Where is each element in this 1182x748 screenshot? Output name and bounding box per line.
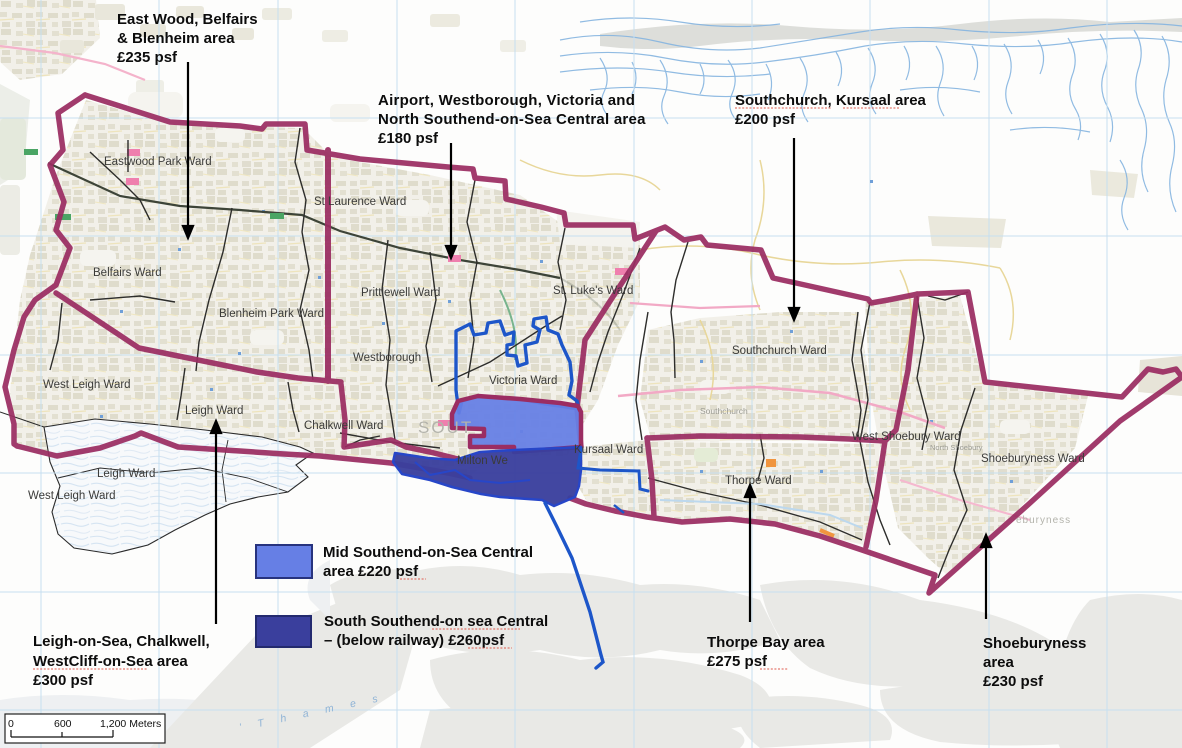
svg-text:£230 psf: £230 psf bbox=[983, 673, 1044, 690]
svg-text:Shoeburyness: Shoeburyness bbox=[983, 635, 1086, 652]
svg-text:area: area bbox=[983, 654, 1015, 671]
svg-text:Kursaal Ward: Kursaal Ward bbox=[574, 444, 643, 456]
svg-text:East Wood, Belfairs: East Wood, Belfairs bbox=[117, 11, 258, 28]
svg-text:£200 psf: £200 psf bbox=[735, 111, 796, 128]
svg-text:Airport, Westborough, Victori: Airport, Westborough, Victoria and bbox=[378, 92, 635, 109]
svg-text:South Southend-on sea Central: South Southend-on sea Central bbox=[324, 613, 548, 630]
svg-text:Chalkwell Ward: Chalkwell Ward bbox=[304, 420, 383, 432]
svg-text:Milton We: Milton We bbox=[457, 455, 508, 467]
svg-text:£180 psf: £180 psf bbox=[378, 130, 439, 147]
svg-text:eburyness: eburyness bbox=[1016, 515, 1071, 526]
svg-text:North Southend-on-Sea Central: North Southend-on-Sea Central area bbox=[378, 111, 646, 128]
svg-text:North Shoebury: North Shoebury bbox=[930, 443, 983, 452]
svg-text:£235 psf: £235 psf bbox=[117, 49, 178, 66]
svg-text:St. Luke's Ward: St. Luke's Ward bbox=[553, 285, 633, 297]
svg-text:1,200 Meters: 1,200 Meters bbox=[100, 718, 161, 730]
svg-text:Leigh-on-Sea, Chalkwell,: Leigh-on-Sea, Chalkwell, bbox=[33, 633, 210, 650]
svg-text:area £220 psf: area £220 psf bbox=[323, 563, 419, 580]
svg-text:0: 0 bbox=[8, 718, 14, 730]
svg-text:Mid Southend-on-Sea Central: Mid Southend-on-Sea Central bbox=[323, 544, 533, 561]
svg-text:Leigh Ward: Leigh Ward bbox=[185, 405, 243, 417]
svg-text:West Shoebury Ward: West Shoebury Ward bbox=[852, 431, 961, 443]
svg-text:& Blenheim area: & Blenheim area bbox=[117, 30, 235, 47]
svg-text:Westborough: Westborough bbox=[353, 352, 421, 364]
svg-text:– (below railway) £260psf: – (below railway) £260psf bbox=[324, 632, 505, 649]
svg-text:Shoeburyness Ward: Shoeburyness Ward bbox=[981, 453, 1085, 465]
svg-text:Leigh Ward: Leigh Ward bbox=[97, 468, 155, 480]
svg-text:WestCliff-on-Sea area: WestCliff-on-Sea area bbox=[33, 653, 188, 670]
svg-text:West Leigh Ward: West Leigh Ward bbox=[43, 379, 131, 391]
svg-text:Southchurch: Southchurch bbox=[700, 406, 748, 416]
svg-text:Thorpe Ward: Thorpe Ward bbox=[725, 475, 792, 487]
svg-text:SOUT: SOUT bbox=[418, 418, 473, 437]
svg-text:Southchurch, Kursaal area: Southchurch, Kursaal area bbox=[735, 92, 927, 109]
svg-text:Eastwood Park Ward: Eastwood Park Ward bbox=[104, 156, 212, 168]
svg-text:Belfairs Ward: Belfairs Ward bbox=[93, 267, 162, 279]
svg-text:Victoria Ward: Victoria Ward bbox=[489, 375, 557, 387]
svg-text:600: 600 bbox=[54, 718, 72, 730]
svg-text:Thorpe Bay area: Thorpe Bay area bbox=[707, 634, 825, 651]
svg-text:Blenheim Park Ward: Blenheim Park Ward bbox=[219, 308, 324, 320]
svg-text:£300 psf: £300 psf bbox=[33, 672, 94, 689]
svg-text:St Laurence Ward: St Laurence Ward bbox=[314, 196, 406, 208]
svg-text:Southchurch Ward: Southchurch Ward bbox=[732, 345, 827, 357]
svg-text:Prittlewell Ward: Prittlewell Ward bbox=[361, 287, 440, 299]
svg-text:West Leigh Ward: West Leigh Ward bbox=[28, 490, 116, 502]
svg-text:£275 psf: £275 psf bbox=[707, 653, 768, 670]
